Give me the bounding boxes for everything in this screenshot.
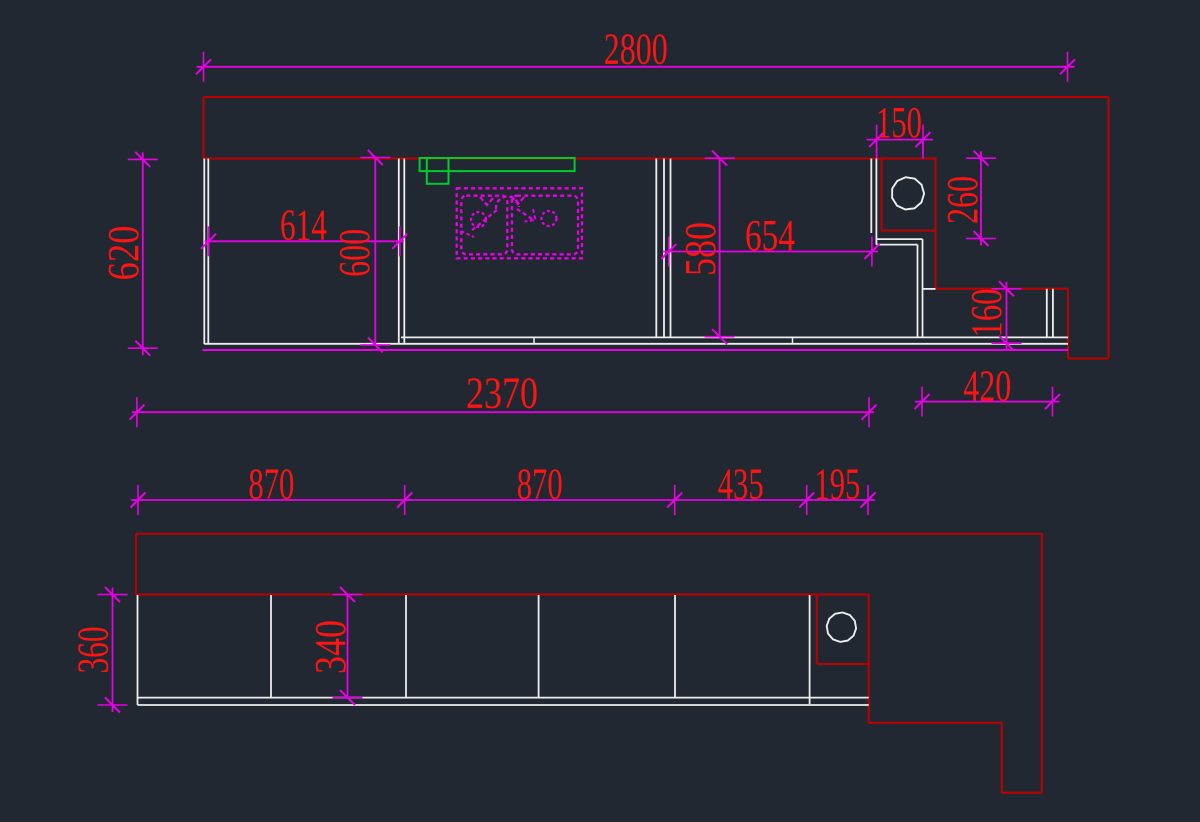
svg-text:360: 360 (68, 627, 118, 674)
svg-text:195: 195 (814, 459, 860, 509)
svg-text:150: 150 (876, 97, 922, 147)
svg-text:614: 614 (280, 200, 327, 250)
svg-text:2800: 2800 (604, 24, 668, 74)
svg-text:340: 340 (305, 620, 355, 674)
svg-text:870: 870 (248, 459, 294, 509)
svg-text:260: 260 (937, 176, 987, 224)
svg-text:420: 420 (963, 361, 1011, 411)
svg-text:654: 654 (745, 210, 795, 260)
svg-text:435: 435 (718, 459, 764, 509)
svg-text:580: 580 (675, 222, 725, 276)
svg-text:620: 620 (98, 226, 148, 281)
svg-text:2370: 2370 (466, 368, 538, 418)
svg-text:600: 600 (329, 229, 379, 277)
svg-text:160: 160 (961, 289, 1011, 338)
svg-text:870: 870 (517, 459, 563, 509)
